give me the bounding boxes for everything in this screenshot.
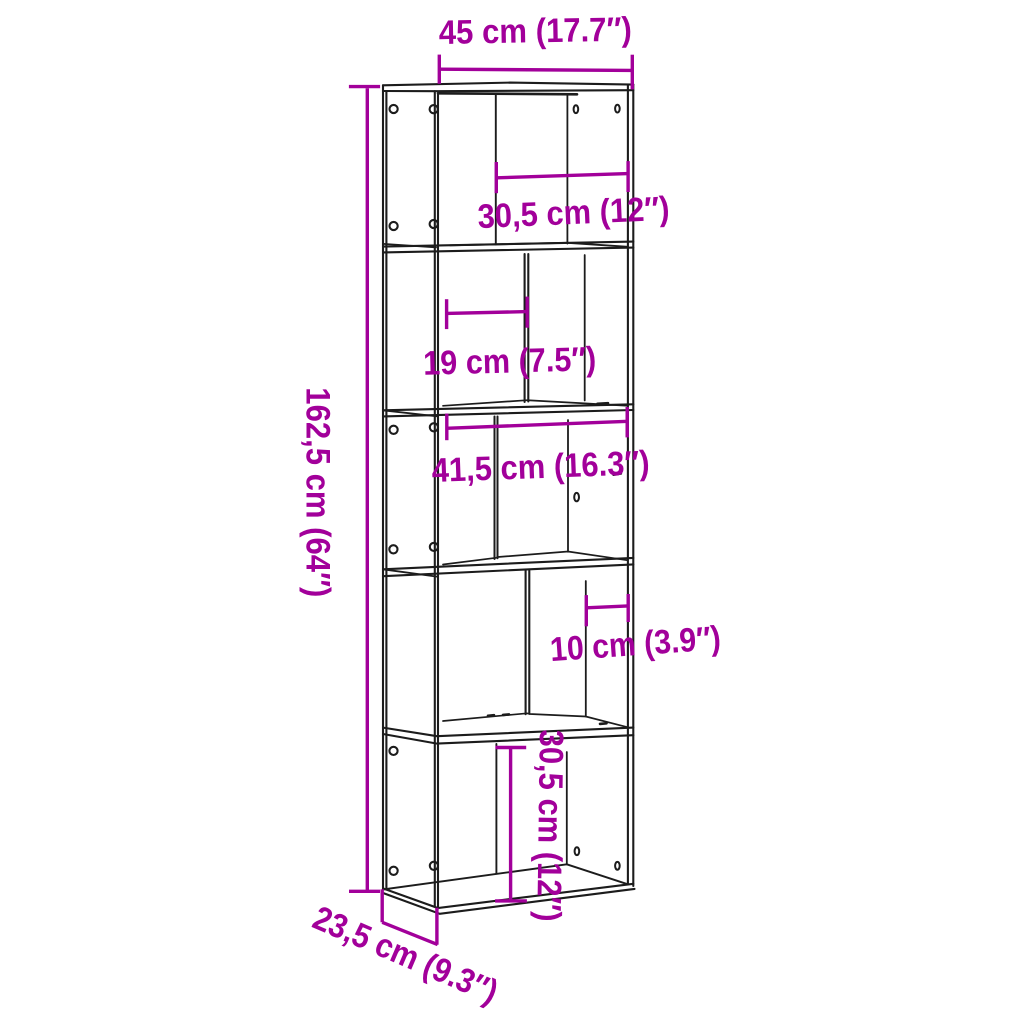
svg-text:10 cm (3.9″): 10 cm (3.9″) — [549, 619, 722, 669]
svg-text:162,5 cm (64″): 162,5 cm (64″) — [299, 387, 337, 597]
svg-text:45 cm (17.7″): 45 cm (17.7″) — [438, 11, 632, 52]
svg-text:30,5 cm (12″): 30,5 cm (12″) — [529, 729, 570, 922]
svg-text:19 cm (7.5″): 19 cm (7.5″) — [423, 340, 597, 383]
svg-text:23,5 cm (9.3″): 23,5 cm (9.3″) — [307, 899, 503, 1012]
svg-text:41,5 cm (16.3″): 41,5 cm (16.3″) — [431, 444, 650, 490]
svg-text:30,5 cm (12″): 30,5 cm (12″) — [477, 190, 670, 236]
